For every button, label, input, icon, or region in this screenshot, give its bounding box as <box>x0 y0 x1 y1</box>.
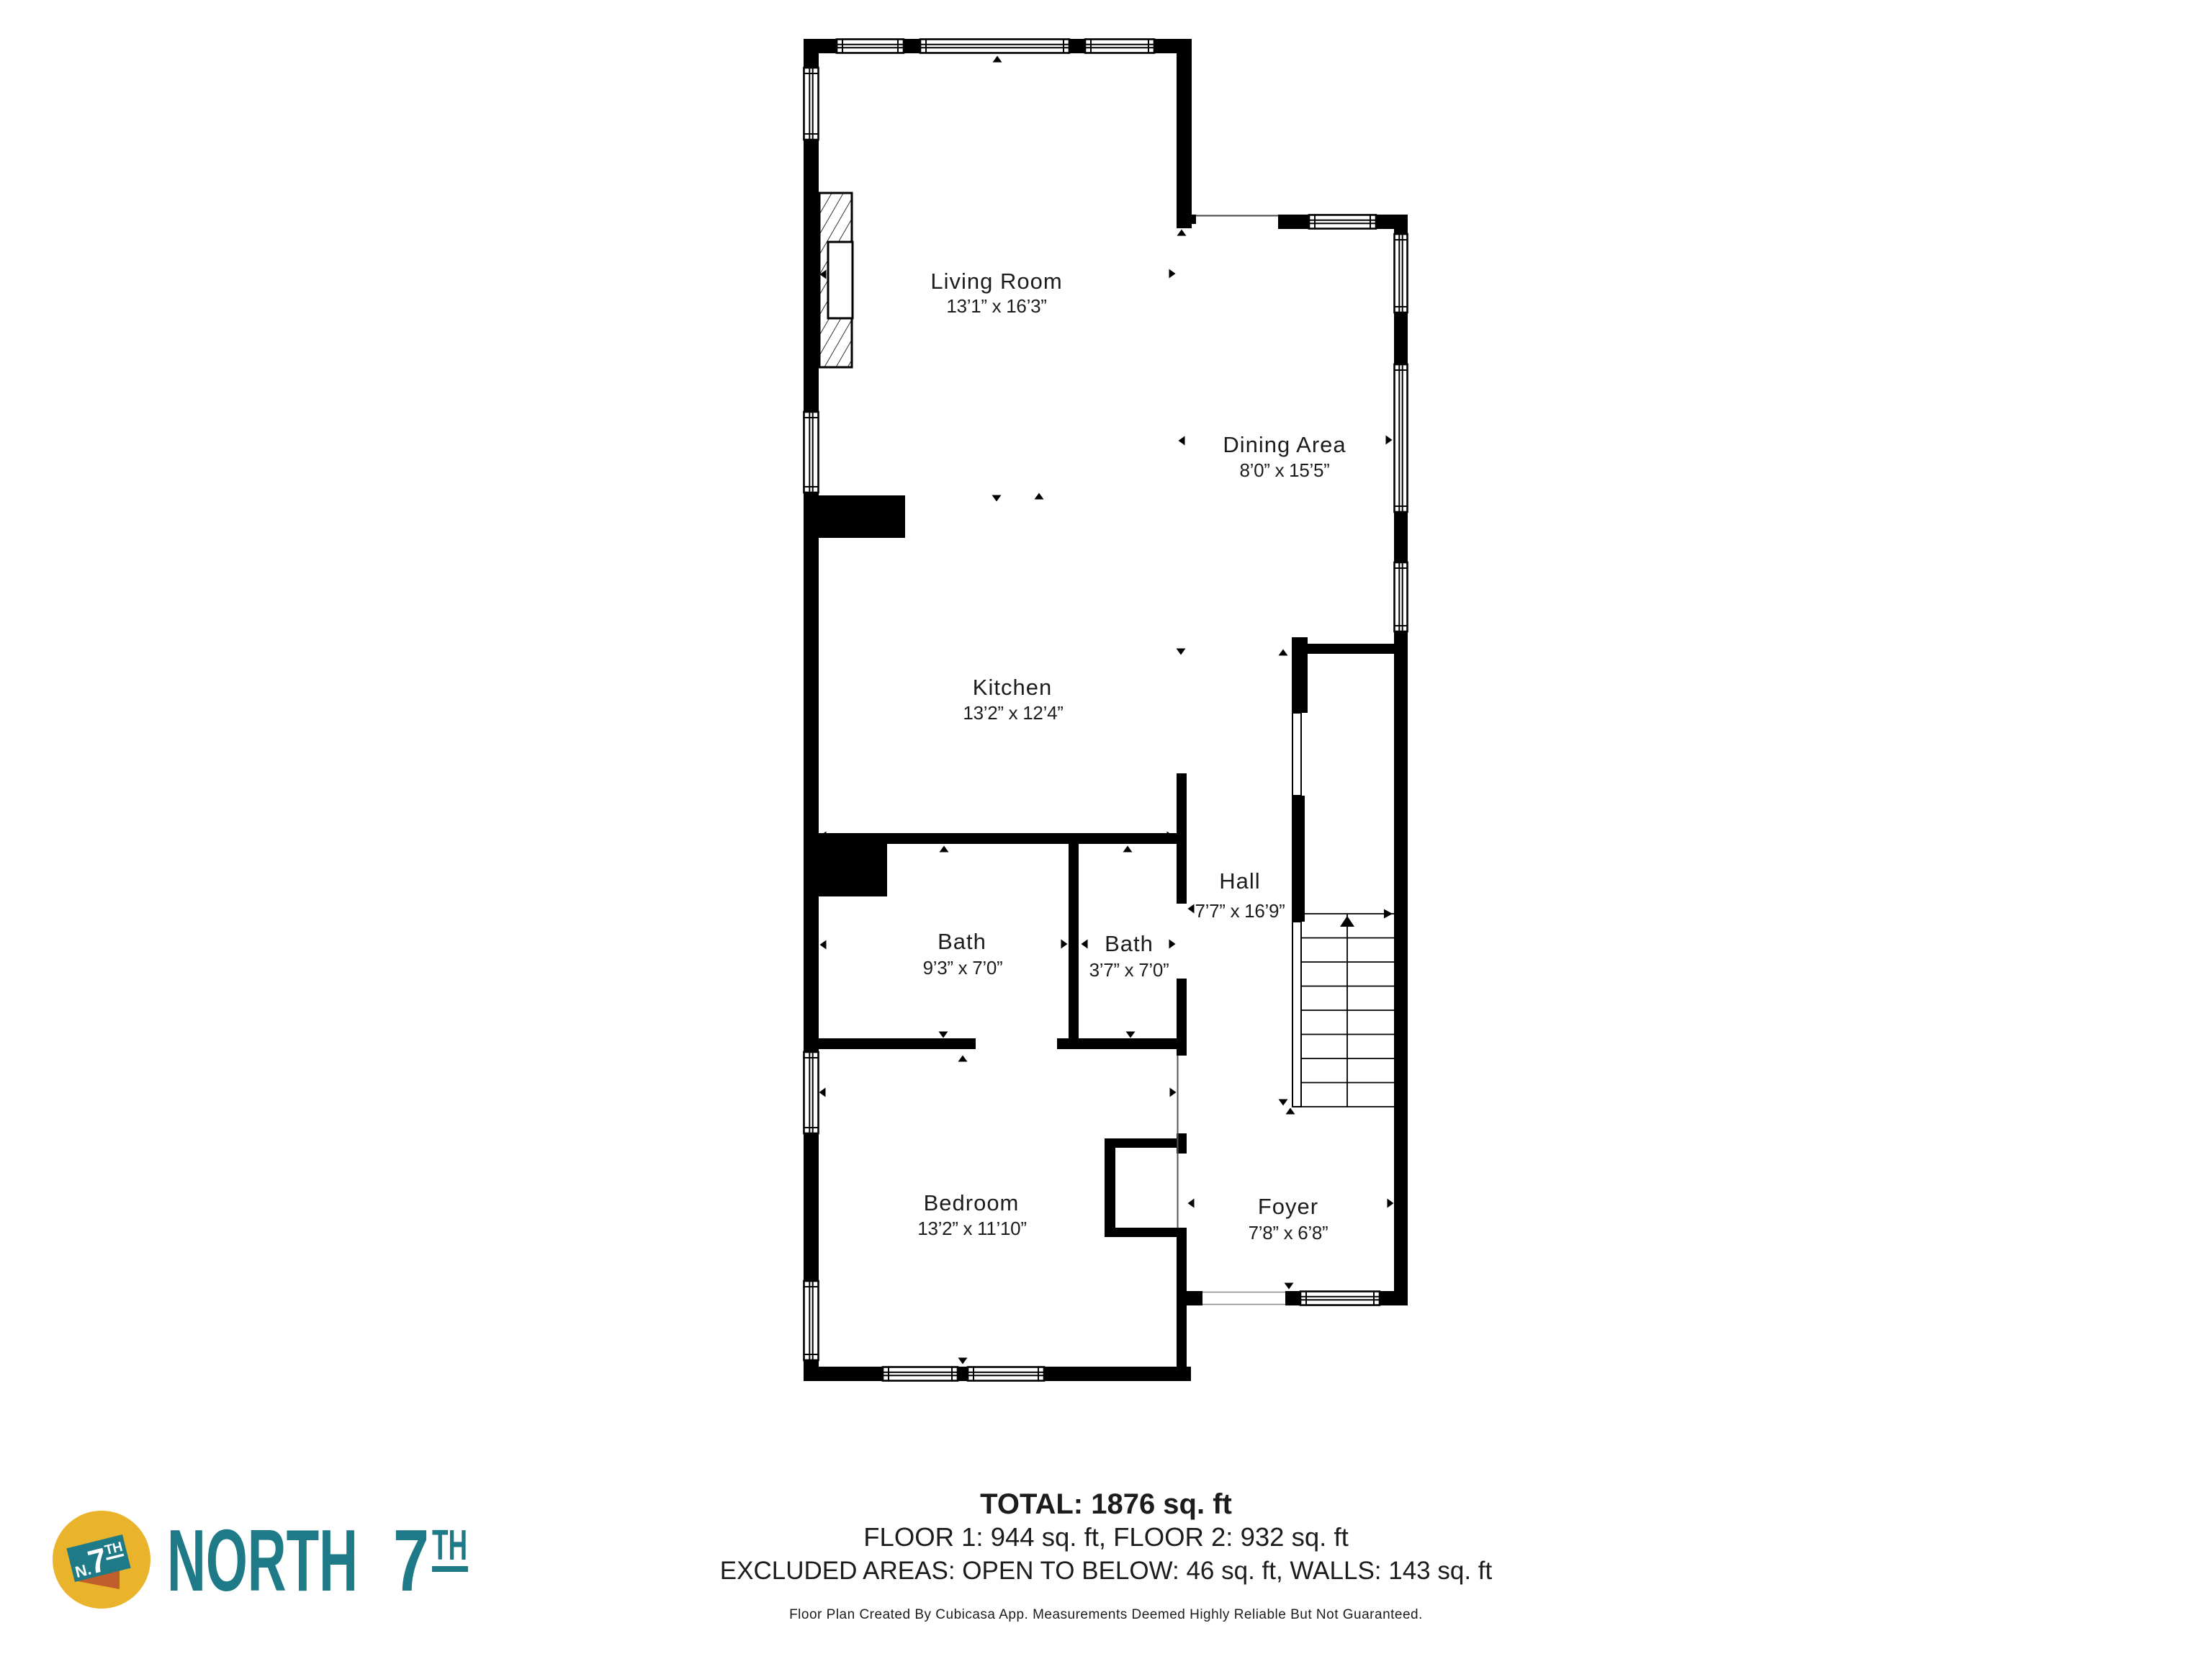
svg-text:Dining Area: Dining Area <box>1223 432 1346 457</box>
svg-text:Kitchen: Kitchen <box>973 675 1052 700</box>
svg-text:13’2” x 11’10”: 13’2” x 11’10” <box>917 1218 1026 1239</box>
svg-text:Bath: Bath <box>1105 931 1154 956</box>
svg-text:7’8” x 6’8”: 7’8” x 6’8” <box>1249 1222 1328 1244</box>
svg-text:13’1” x 16’3”: 13’1” x 16’3” <box>946 295 1046 317</box>
svg-text:13’2” x 12’4”: 13’2” x 12’4” <box>963 702 1063 724</box>
svg-text:Hall: Hall <box>1219 868 1260 894</box>
svg-text:FLOOR 1: 944 sq. ft, FLOOR 2:: FLOOR 1: 944 sq. ft, FLOOR 2: 932 sq. ft <box>863 1522 1349 1552</box>
svg-text:8’0” x 15’5”: 8’0” x 15’5” <box>1239 459 1329 481</box>
svg-text:Bath: Bath <box>938 929 986 954</box>
svg-text:Foyer: Foyer <box>1258 1194 1318 1219</box>
svg-text:Living Room: Living Room <box>930 269 1062 294</box>
svg-text:TH: TH <box>432 1521 467 1569</box>
svg-text:9’3” x 7’0”: 9’3” x 7’0” <box>923 957 1003 979</box>
svg-text:NORTH: NORTH <box>167 1511 358 1609</box>
svg-text:7’7” x 16’9”: 7’7” x 16’9” <box>1195 900 1285 922</box>
svg-text:Bedroom: Bedroom <box>924 1190 1020 1215</box>
svg-text:3’7” x 7’0”: 3’7” x 7’0” <box>1089 959 1169 981</box>
svg-text:TOTAL: 1876 sq. ft: TOTAL: 1876 sq. ft <box>980 1488 1232 1520</box>
svg-text:Floor Plan Created By Cubicasa: Floor Plan Created By Cubicasa App. Meas… <box>789 1607 1423 1622</box>
svg-text:EXCLUDED AREAS: OPEN TO BELOW:: EXCLUDED AREAS: OPEN TO BELOW: 46 sq. ft… <box>720 1557 1493 1585</box>
svg-text:7: 7 <box>393 1511 429 1609</box>
